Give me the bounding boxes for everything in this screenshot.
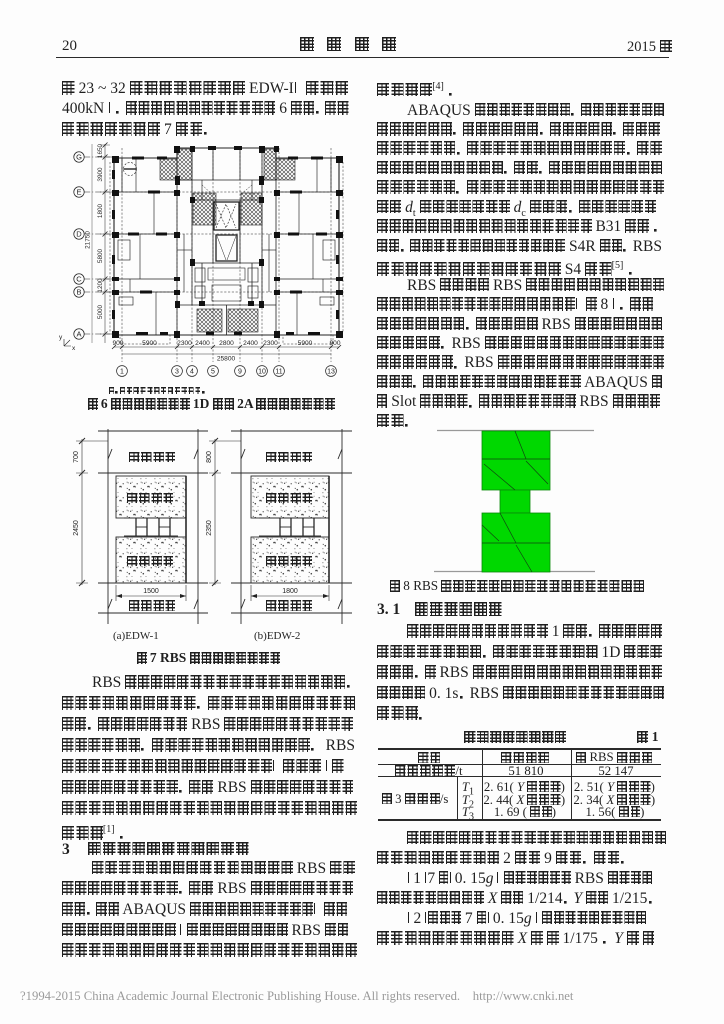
svg-text:3900: 3900: [97, 167, 104, 182]
svg-text:E: E: [76, 188, 81, 197]
svg-text:1200: 1200: [97, 278, 104, 293]
svg-text:G: G: [76, 153, 82, 162]
svg-text:21750: 21750: [85, 231, 92, 249]
svg-text:x: x: [72, 345, 76, 352]
svg-text:4: 4: [190, 369, 194, 376]
svg-text:1500: 1500: [143, 588, 159, 595]
svg-text:y: y: [59, 334, 63, 341]
svg-text:10: 10: [258, 369, 266, 376]
svg-text:5900: 5900: [298, 340, 313, 347]
svg-text:13: 13: [327, 369, 335, 376]
svg-text:B: B: [76, 288, 81, 297]
svg-text:2400: 2400: [195, 340, 210, 347]
svg-text:11: 11: [275, 369, 282, 376]
svg-text:9: 9: [238, 369, 242, 376]
svg-text:C: C: [76, 275, 82, 284]
svg-text:800: 800: [206, 451, 213, 463]
svg-text:2450: 2450: [73, 520, 80, 536]
svg-text:900: 900: [112, 340, 123, 347]
svg-text:1800: 1800: [282, 588, 298, 595]
svg-text:1800: 1800: [97, 203, 104, 218]
svg-text:A: A: [76, 330, 81, 339]
svg-text:700: 700: [73, 451, 80, 463]
svg-text:1650: 1650: [97, 143, 104, 158]
svg-text:2400: 2400: [243, 340, 258, 347]
svg-text:5900: 5900: [142, 340, 157, 347]
svg-text:5: 5: [211, 369, 215, 376]
svg-text:1: 1: [120, 369, 124, 376]
svg-text:5800: 5800: [97, 248, 104, 263]
svg-text:2300: 2300: [177, 340, 192, 347]
svg-text:2300: 2300: [263, 340, 278, 347]
svg-text:900: 900: [329, 340, 340, 347]
svg-text:5000: 5000: [97, 304, 104, 319]
svg-text:3: 3: [175, 369, 179, 376]
svg-text:25800: 25800: [217, 356, 236, 363]
svg-text:2800: 2800: [219, 340, 234, 347]
svg-text:D: D: [76, 230, 82, 239]
svg-text:2350: 2350: [206, 520, 213, 536]
